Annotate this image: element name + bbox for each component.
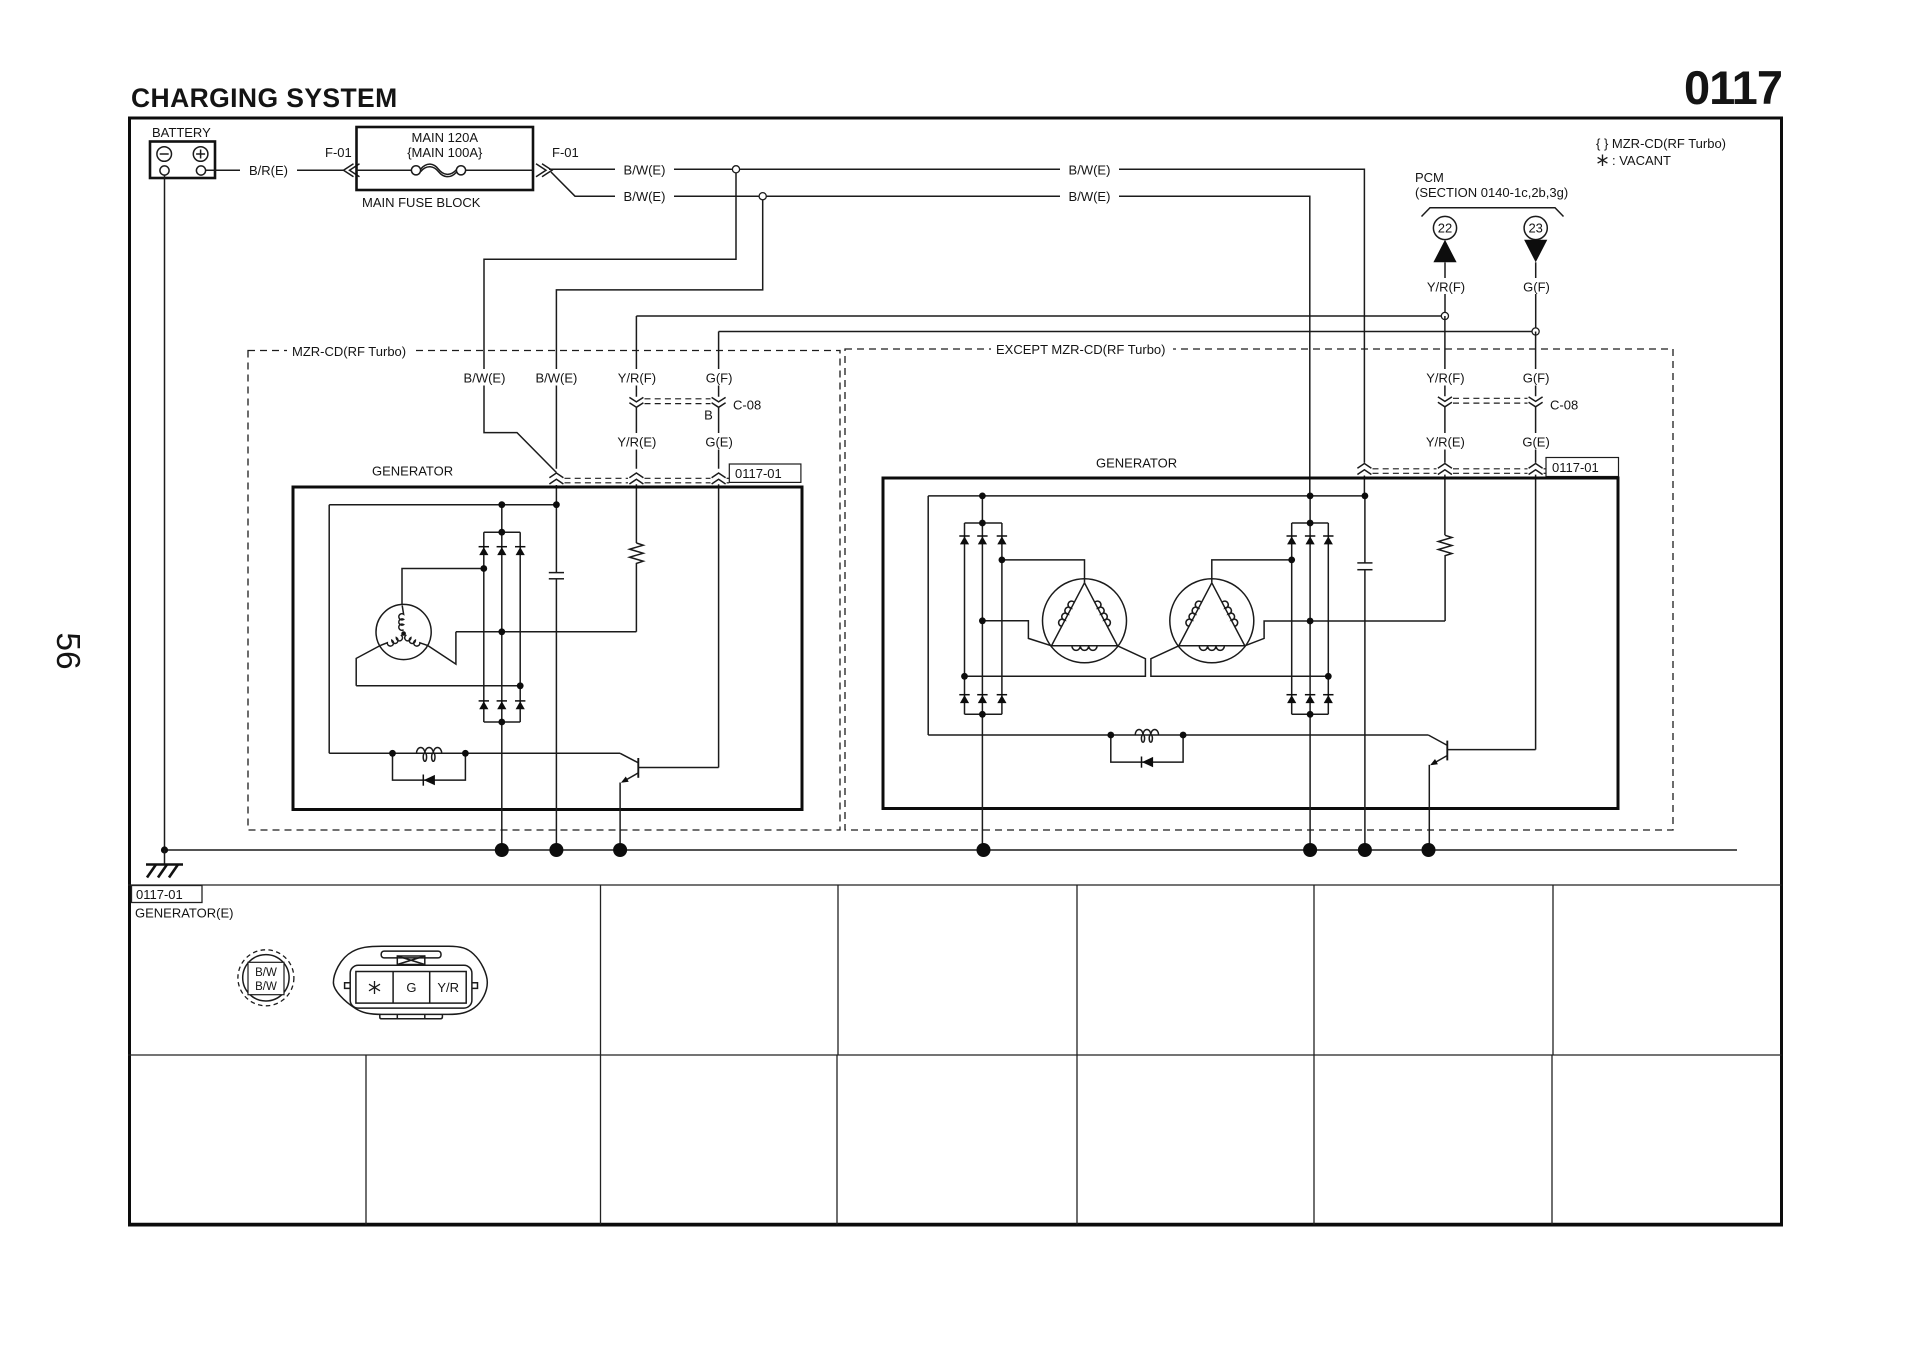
svg-text:MZR-CD(RF Turbo): MZR-CD(RF Turbo) <box>292 344 406 359</box>
svg-text:EXCEPT MZR-CD(RF Turbo): EXCEPT MZR-CD(RF Turbo) <box>996 342 1166 357</box>
svg-text:BATTERY: BATTERY <box>152 125 211 140</box>
svg-text:Y/R(F): Y/R(F) <box>618 371 656 386</box>
svg-text:G(F): G(F) <box>1523 280 1550 295</box>
svg-text:C-08: C-08 <box>1550 398 1578 413</box>
svg-text:Y/R: Y/R <box>437 980 459 995</box>
svg-text:0117-01: 0117-01 <box>735 466 782 481</box>
svg-text:B/W(E): B/W(E) <box>464 371 506 386</box>
svg-text:GENERATOR(E): GENERATOR(E) <box>135 906 233 921</box>
svg-text:C-08: C-08 <box>733 398 761 413</box>
svg-text:MAIN 120A: MAIN 120A <box>412 130 479 145</box>
svg-text:0117-01: 0117-01 <box>136 887 183 902</box>
svg-text:Y/R(F): Y/R(F) <box>1426 371 1464 386</box>
svg-text:22: 22 <box>1438 221 1452 236</box>
svg-text:: VACANT: : VACANT <box>1612 153 1671 168</box>
svg-text:B/W(E): B/W(E) <box>1069 162 1111 177</box>
svg-text:CHARGING SYSTEM: CHARGING SYSTEM <box>131 83 398 113</box>
svg-text:23: 23 <box>1528 221 1542 236</box>
svg-text:B: B <box>704 408 713 423</box>
svg-text:F-01: F-01 <box>325 145 352 160</box>
svg-text:PCM: PCM <box>1415 170 1444 185</box>
svg-text:Y/R(E): Y/R(E) <box>1426 435 1465 450</box>
svg-text:Y/R(E): Y/R(E) <box>617 435 656 450</box>
svg-text:{MAIN 100A}: {MAIN 100A} <box>407 145 483 160</box>
svg-text:0117: 0117 <box>1684 61 1782 114</box>
svg-text:B/W: B/W <box>255 981 277 993</box>
svg-text:MAIN FUSE BLOCK: MAIN FUSE BLOCK <box>362 195 481 210</box>
svg-text:G(E): G(E) <box>705 435 732 450</box>
svg-text:B/W: B/W <box>255 967 277 979</box>
svg-text:GENERATOR: GENERATOR <box>372 464 453 479</box>
svg-text:G(F): G(F) <box>1523 371 1550 386</box>
svg-text:G: G <box>406 980 416 995</box>
svg-text:B/W(E): B/W(E) <box>624 189 666 204</box>
svg-text:F-01: F-01 <box>552 145 579 160</box>
svg-text:G(F): G(F) <box>706 371 733 386</box>
svg-text:B/R(E): B/R(E) <box>249 163 288 178</box>
svg-text:0117-01: 0117-01 <box>1552 460 1599 475</box>
svg-text:(SECTION 0140-1c,2b,3g): (SECTION 0140-1c,2b,3g) <box>1415 185 1568 200</box>
svg-text:B/W(E): B/W(E) <box>624 162 666 177</box>
svg-text:G(E): G(E) <box>1522 435 1549 450</box>
svg-text:B/W(E): B/W(E) <box>535 371 577 386</box>
svg-text:GENERATOR: GENERATOR <box>1096 456 1177 471</box>
svg-text:B/W(E): B/W(E) <box>1069 189 1111 204</box>
svg-text:{ } MZR-CD(RF Turbo): { } MZR-CD(RF Turbo) <box>1596 136 1726 151</box>
svg-text:Y/R(F): Y/R(F) <box>1427 280 1465 295</box>
svg-text:56: 56 <box>49 632 86 669</box>
